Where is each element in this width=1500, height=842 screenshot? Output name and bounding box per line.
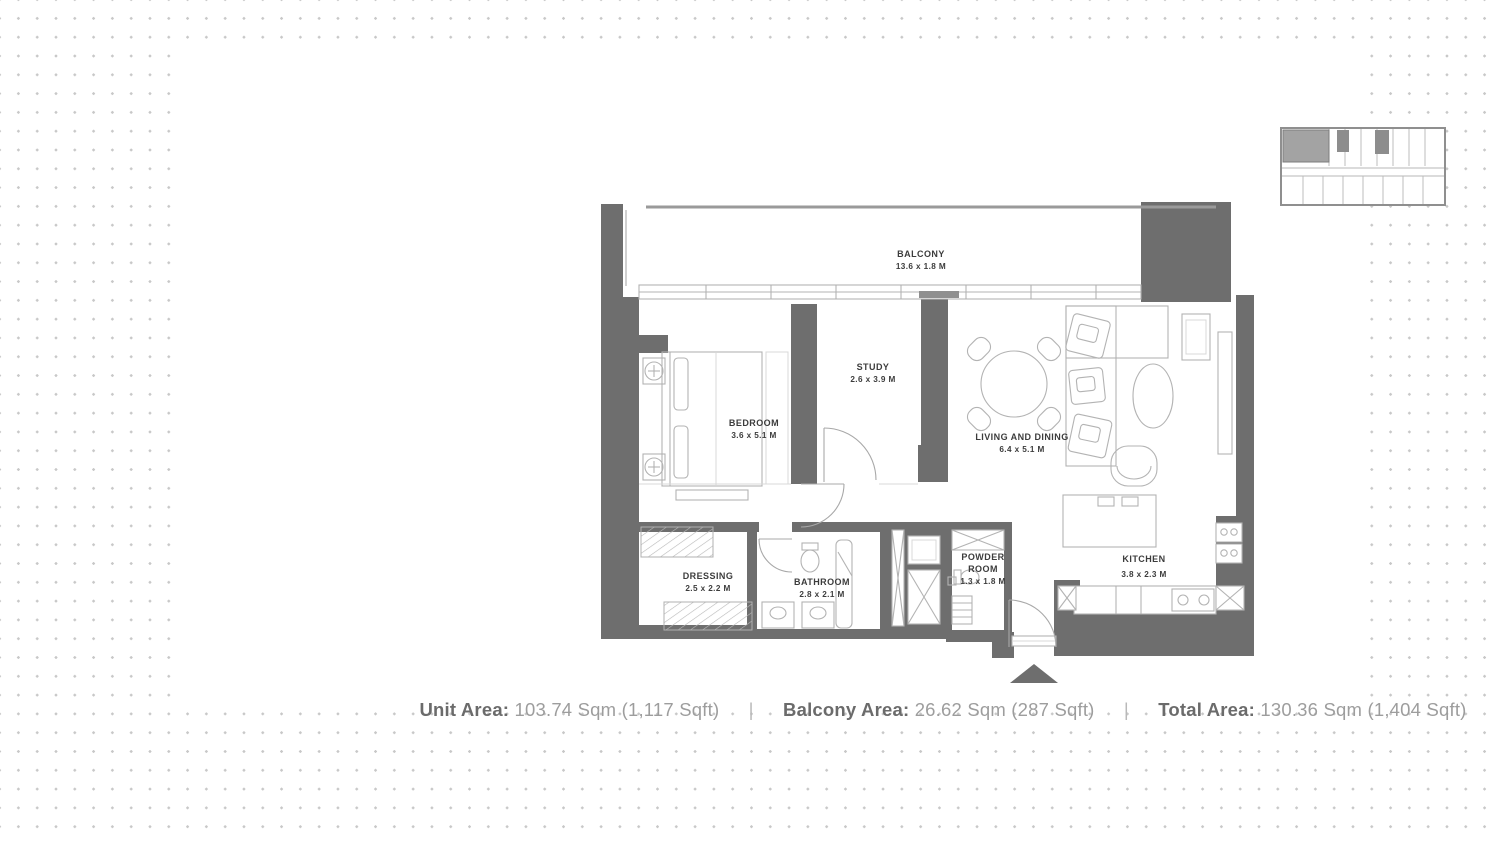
utility-shafts — [892, 530, 940, 626]
hall-door-swing — [801, 484, 844, 527]
room-dims-dressing: 2.5 x 2.2 M — [685, 584, 730, 593]
room-label-powder-2: ROOM — [968, 564, 998, 574]
room-dims-living-dining: 6.4 x 5.1 M — [999, 445, 1044, 454]
sofa-set — [1065, 306, 1232, 486]
kitchen-island — [1063, 495, 1156, 547]
sink — [802, 602, 834, 628]
toilet-tank — [802, 543, 818, 550]
room-label-bedroom: BEDROOM — [729, 418, 779, 428]
console — [1218, 332, 1232, 454]
total-area-label: Total Area: — [1158, 699, 1255, 720]
room-label-study: STUDY — [857, 362, 890, 372]
sliding-door-panel — [919, 291, 959, 298]
area-summary: Unit Area: 103.74 Sqm (1,117 Sqft) | Bal… — [352, 699, 1500, 721]
room-dims-kitchen: 3.8 x 2.3 M — [1121, 570, 1166, 579]
study-door-swing — [824, 428, 876, 480]
room-label-powder-1: POWDER — [961, 552, 1004, 562]
entrance-arrow — [1010, 664, 1058, 683]
separator: | — [749, 699, 754, 720]
bathroom-door-swing — [759, 539, 792, 572]
balcony-area-label: Balcony Area: — [783, 699, 909, 720]
bed-bench — [676, 490, 748, 500]
key-plan-highlighted-unit — [1283, 130, 1329, 162]
dining-table — [981, 351, 1047, 417]
floor-plan: BALCONY 13.6 x 1.8 M BEDROOM 3.6 x 5.1 M… — [596, 200, 1258, 686]
toilet — [801, 550, 819, 572]
dining-set — [964, 334, 1064, 434]
room-dims-study: 2.6 x 3.9 M — [850, 375, 895, 384]
room-dims-bedroom: 3.6 x 5.1 M — [731, 431, 776, 440]
room-label-dressing: DRESSING — [683, 571, 734, 581]
room-label-bathroom: BATHROOM — [794, 577, 850, 587]
kitchen-counter — [1074, 586, 1216, 614]
sink — [762, 602, 794, 628]
total-area-value: 130.36 Sqm (1,404 Sqft) — [1260, 699, 1466, 720]
balcony-area-value: 26.62 Sqm (287 Sqft) — [915, 699, 1095, 720]
coffee-table — [1133, 364, 1173, 428]
room-dims-bathroom: 2.8 x 2.1 M — [799, 590, 844, 599]
separator: | — [1124, 699, 1129, 720]
room-dims-balcony: 13.6 x 1.8 M — [896, 262, 946, 271]
room-label-balcony: BALCONY — [897, 249, 945, 259]
armchair — [1111, 446, 1157, 486]
room-dims-powder: 1.3 x 1.8 M — [960, 577, 1005, 586]
page: { "floor_plan": { "rooms": { "balcony": … — [0, 0, 1500, 842]
unit-area-label: Unit Area: — [419, 699, 509, 720]
unit-area-value: 103.74 Sqm (1,117 Sqft) — [515, 699, 720, 720]
building-key-plan — [1279, 126, 1447, 210]
room-label-kitchen: KITCHEN — [1122, 554, 1165, 564]
room-label-living-dining: LIVING AND DINING — [975, 432, 1068, 442]
plan-card: BALCONY 13.6 x 1.8 M BEDROOM 3.6 x 5.1 M… — [176, 47, 1358, 704]
